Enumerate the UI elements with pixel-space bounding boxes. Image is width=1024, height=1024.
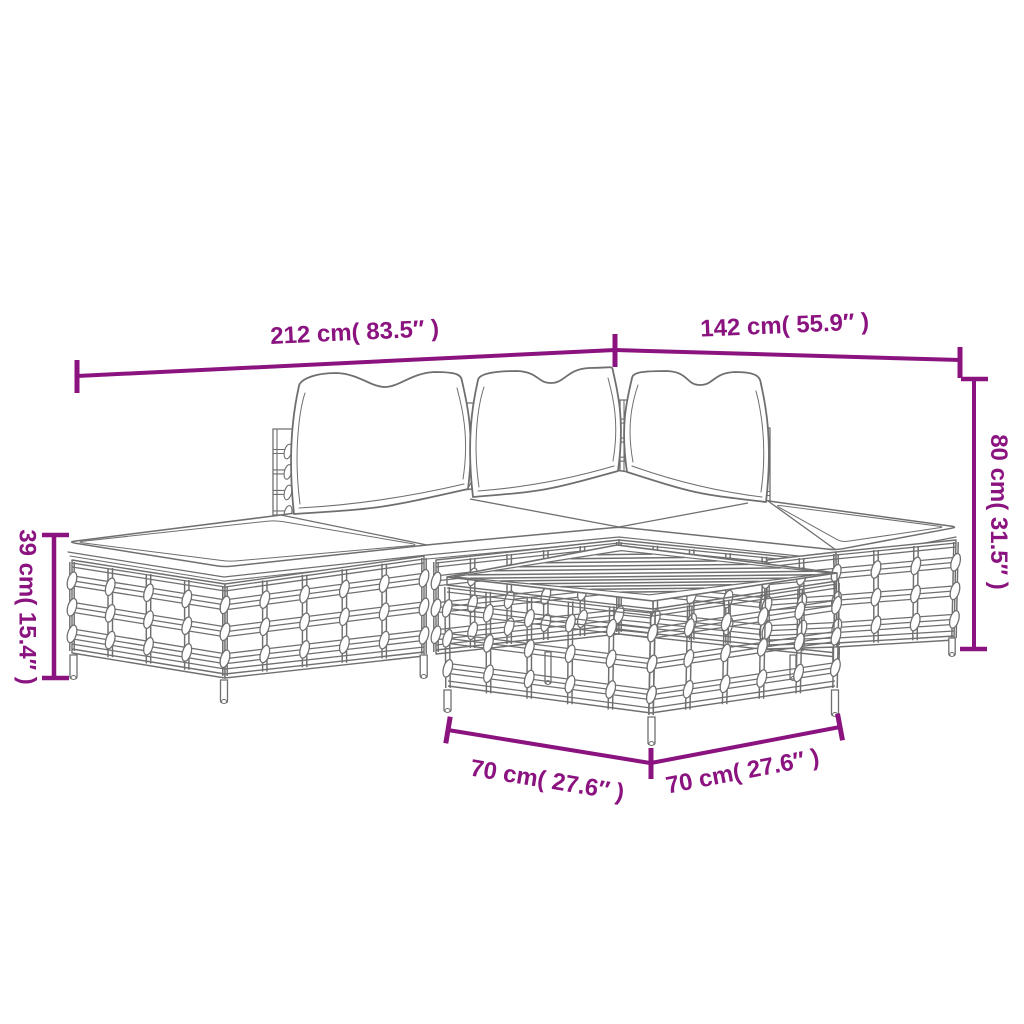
svg-text:80 cm( 31.5″ ): 80 cm( 31.5″ ) (985, 434, 1012, 590)
svg-text:39 cm( 15.4″ ): 39 cm( 15.4″ ) (14, 529, 41, 685)
